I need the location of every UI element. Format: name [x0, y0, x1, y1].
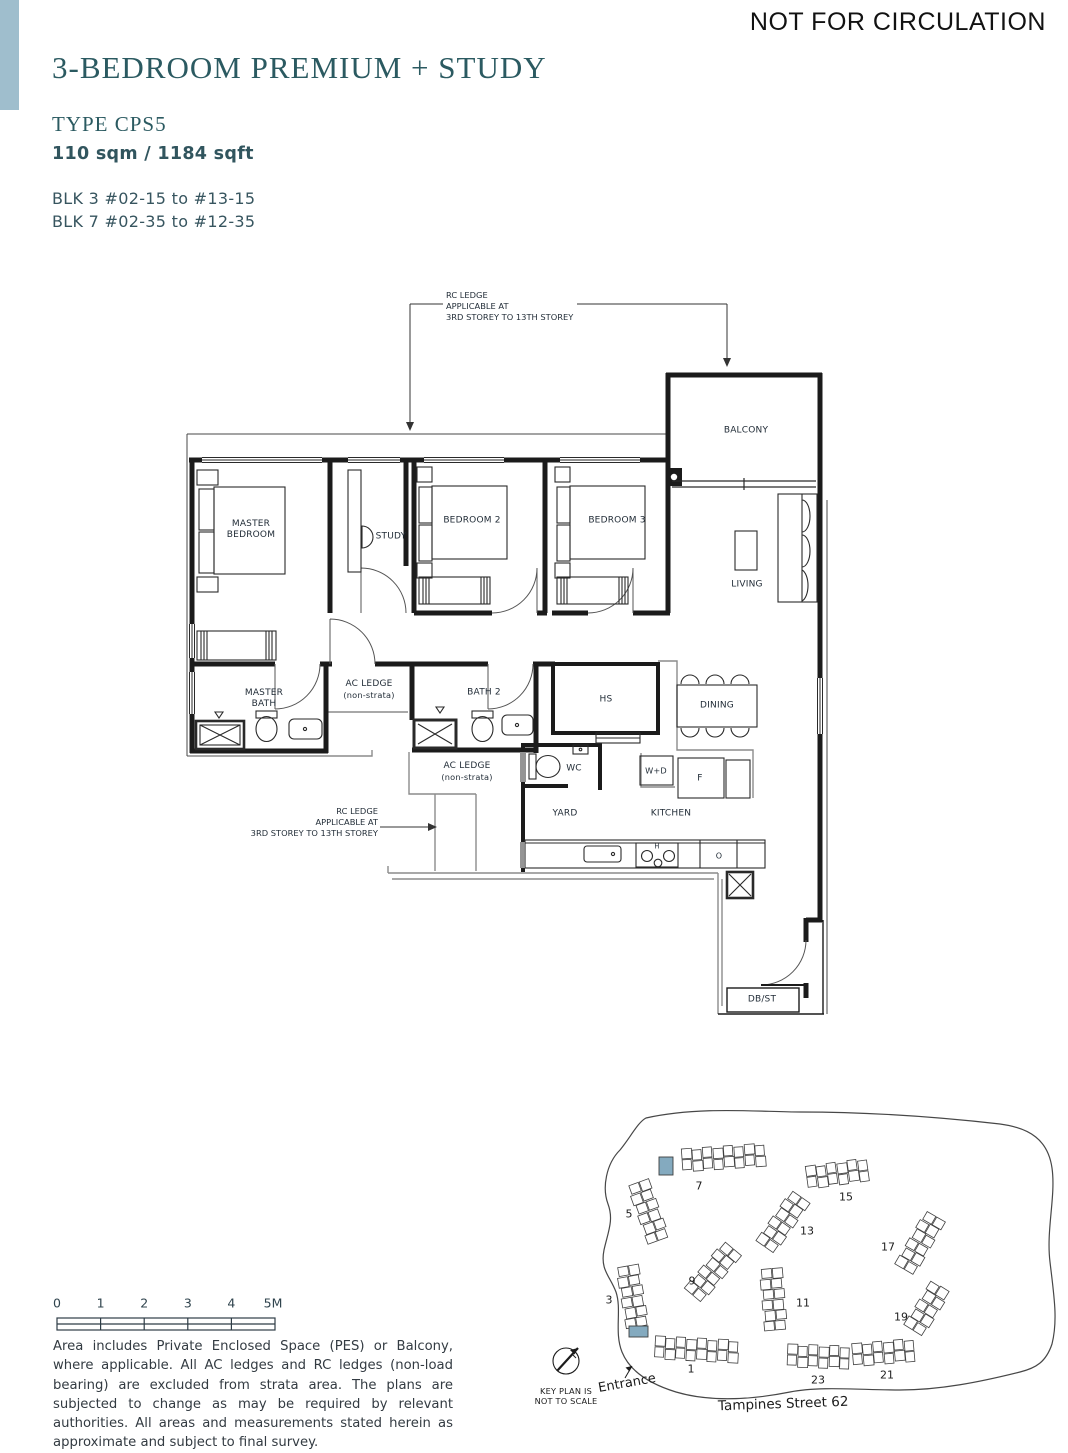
column	[666, 468, 682, 486]
watermark: NOT FOR CIRCULATION	[750, 8, 1046, 37]
accent-bar	[0, 0, 19, 110]
keyplan-block-label: 3	[606, 1294, 613, 1307]
keyplan-block-label: 23	[811, 1374, 825, 1387]
scalebar-label: 2	[140, 1296, 148, 1311]
block-range-2: BLK 7 #02-35 to #12-35	[52, 212, 255, 231]
balcony-slider	[672, 478, 816, 490]
key-plan-clusters	[616, 1143, 951, 1369]
key-plan	[553, 1111, 1055, 1399]
disclaimer-text: Area includes Private Enclosed Space (PE…	[53, 1337, 453, 1453]
room-label-bedroom-2: BEDROOM 2	[443, 516, 500, 527]
rc-ledge-note-top: RC LEDGE APPLICABLE AT 3RD STOREY TO 13T…	[446, 290, 573, 322]
site-boundary	[603, 1111, 1055, 1399]
rc-ledge-lines	[187, 434, 827, 1014]
entrance-label: Entrance	[597, 1371, 657, 1396]
room-label-wc: WC	[566, 764, 582, 775]
room-label-bedroom-3: BEDROOM 3	[588, 516, 645, 527]
leader-lines	[380, 304, 727, 827]
keyplan-cluster	[681, 1143, 766, 1172]
keyplan-cluster	[654, 1336, 739, 1363]
keyplan-cluster	[852, 1338, 915, 1366]
rc-ledge-note-bottom: RC LEDGE APPLICABLE AT 3RD STOREY TO 13T…	[251, 806, 378, 838]
scalebar-label: 0	[53, 1296, 61, 1311]
keyplan-cluster	[805, 1158, 869, 1189]
block-range-1: BLK 3 #02-15 to #13-15	[52, 189, 255, 208]
keyplan-block-label: 9	[689, 1275, 696, 1288]
scalebar-label: 1	[97, 1296, 105, 1311]
keyplan-block-label: 19	[894, 1311, 908, 1324]
keyplan-highlight-unit	[629, 1326, 648, 1337]
keyplan-cluster	[616, 1264, 649, 1329]
scalebar-label: 5M	[264, 1296, 283, 1311]
unit-area-label: 110 sqm / 1184 sqft	[52, 144, 254, 164]
room-label-fridge: F	[697, 774, 702, 785]
keyplan-cluster	[759, 1268, 787, 1331]
keyplan-block-label: 5	[626, 1208, 633, 1221]
floorplan-page: { "page": { "watermark": "NOT FOR CIRCUL…	[0, 0, 1068, 1412]
room-label-kitchen: KITCHEN	[651, 809, 691, 820]
keyplan-cluster	[627, 1179, 670, 1245]
room-label-bath-2: BATH 2	[467, 688, 501, 699]
keyplan-cluster	[895, 1211, 946, 1276]
keyplan-cluster	[684, 1241, 741, 1303]
page-title: 3-BEDROOM PREMIUM + STUDY	[52, 50, 547, 86]
keyplan-cluster	[756, 1190, 810, 1254]
room-label-dining: DINING	[700, 701, 734, 712]
door-swings	[275, 568, 806, 985]
keyplan-highlight-unit	[659, 1157, 673, 1175]
room-label-yard: YARD	[553, 809, 578, 820]
scale-bar	[57, 1318, 275, 1330]
keyplan-block-label: 11	[796, 1297, 810, 1310]
hob-label: H	[654, 842, 659, 853]
keyplan-block-label: 15	[839, 1191, 853, 1204]
scalebar-label: 4	[227, 1296, 235, 1311]
unit-type-label: TYPE CPS5	[52, 112, 167, 137]
keyplan-note-1: KEY PLAN IS	[540, 1386, 592, 1396]
room-label-db-st: DB/ST	[748, 995, 776, 1006]
keyplan-block-label: 17	[881, 1241, 895, 1254]
walls-secondary	[521, 664, 658, 872]
key-plan-highlighted-units	[629, 1157, 673, 1337]
room-label-washer-dryer: W+D	[645, 766, 667, 777]
keyplan-cluster	[904, 1280, 951, 1336]
room-label-master-bath: MASTER BATH	[245, 688, 283, 710]
keyplan-block-label: 21	[880, 1369, 894, 1382]
scalebar-label: 3	[184, 1296, 192, 1311]
keyplan-block-label: 1	[688, 1363, 695, 1376]
room-label-living: LIVING	[731, 580, 762, 591]
room-label-ac-ledge-1: AC LEDGE (non-strata)	[343, 679, 394, 701]
room-label-balcony: BALCONY	[724, 426, 768, 437]
column-dot	[671, 474, 677, 480]
room-label-master-bedroom: MASTER BEDROOM	[227, 519, 275, 541]
keyplan-cluster	[787, 1344, 849, 1369]
keyplan-block-label: 13	[800, 1225, 814, 1238]
room-label-ac-ledge-2: AC LEDGE (non-strata)	[441, 761, 492, 783]
room-label-hs: HS	[600, 695, 613, 706]
walls	[189, 373, 822, 998]
oven-label: O	[716, 851, 723, 862]
room-label-study: STUDY	[376, 532, 407, 543]
north-compass-icon	[553, 1348, 579, 1374]
keyplan-block-label: 7	[696, 1180, 703, 1193]
street-label: Tampines Street 62	[718, 1394, 849, 1415]
keyplan-note-2: NOT TO SCALE	[535, 1396, 598, 1406]
